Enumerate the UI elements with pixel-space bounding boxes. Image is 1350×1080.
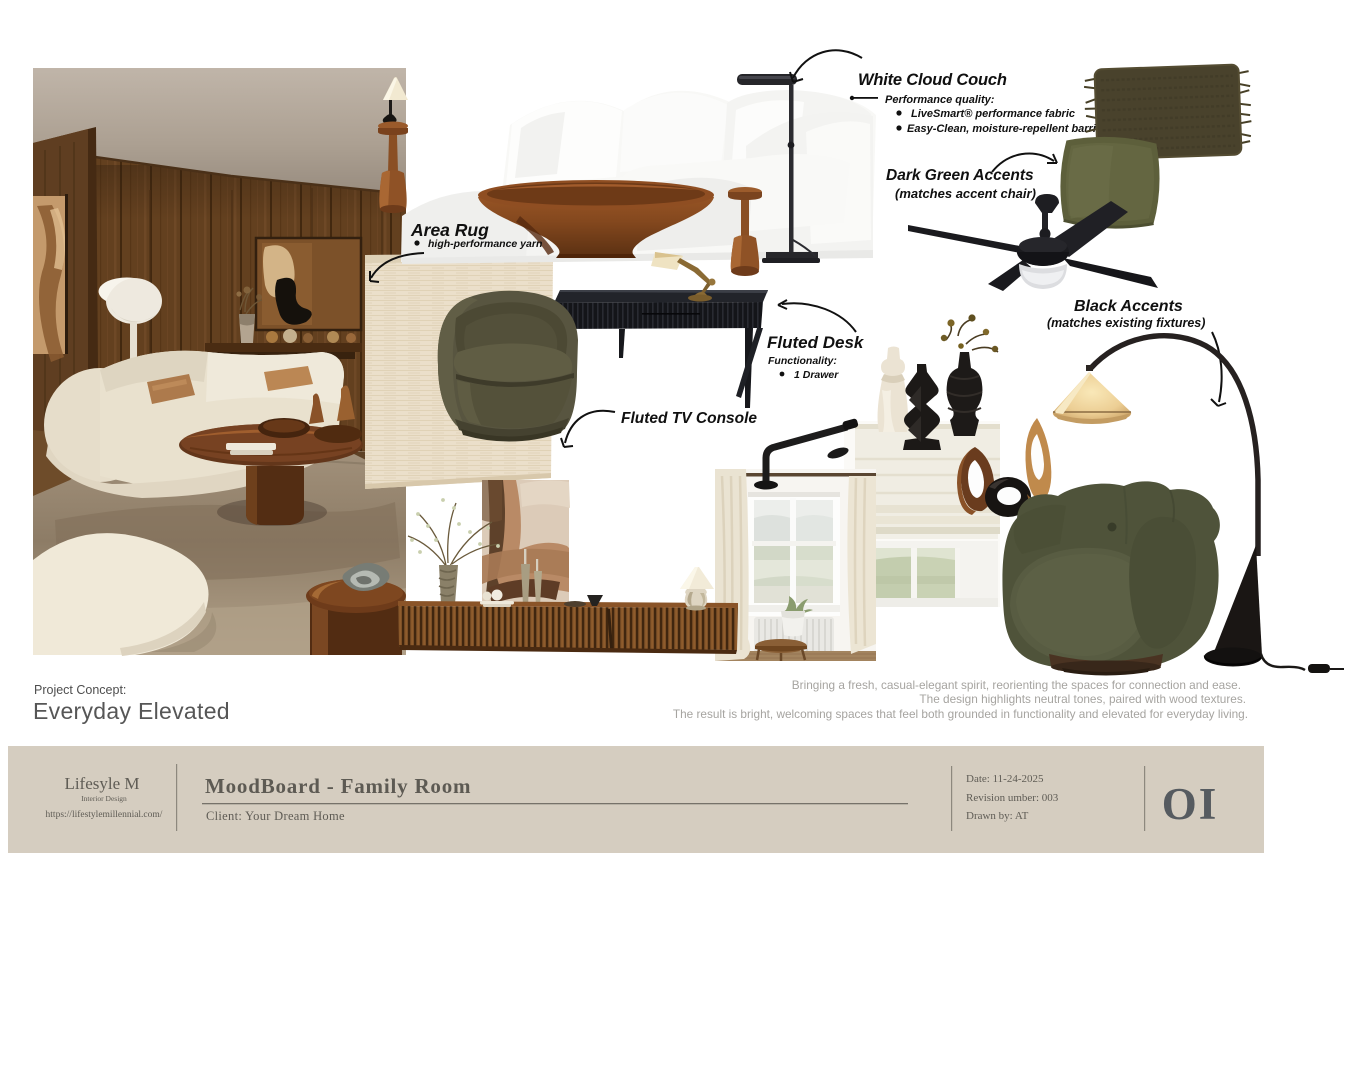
svg-text:Black Accents: Black Accents: [1074, 298, 1183, 315]
svg-text:MoodBoard - Family Room: MoodBoard - Family Room: [205, 774, 471, 798]
svg-text:(matches existing fixtures): (matches existing fixtures): [1047, 316, 1205, 330]
svg-text:The design highlights neutral: The design highlights neutral tones, pai…: [919, 692, 1246, 706]
svg-text:1 Drawer: 1 Drawer: [794, 369, 839, 381]
svg-text:Everyday Elevated: Everyday Elevated: [33, 698, 230, 724]
svg-text:Bringing a fresh, casual-elega: Bringing a fresh, casual-elegant spirit,…: [792, 678, 1241, 692]
svg-text:Interior Design: Interior Design: [81, 794, 127, 803]
svg-text:Easy-Clean, moisture-repellent: Easy-Clean, moisture-repellent barrier: [907, 123, 1107, 135]
svg-text:Client: Your Dream Home: Client: Your Dream Home: [206, 809, 345, 823]
svg-text:(matches accent chair): (matches accent chair): [895, 186, 1036, 201]
svg-text:Date: 11-24-2025: Date: 11-24-2025: [966, 773, 1044, 785]
svg-text:LiveSmart® performance fabric: LiveSmart® performance fabric: [911, 108, 1075, 120]
svg-text:Functionality:: Functionality:: [768, 355, 837, 367]
svg-text:Project Concept:: Project Concept:: [34, 683, 126, 697]
svg-text:https://lifestylemillennial.co: https://lifestylemillennial.com/: [46, 809, 163, 820]
svg-text:White Cloud Couch: White Cloud Couch: [858, 71, 1007, 89]
svg-text:Fluted TV Console: Fluted TV Console: [621, 410, 757, 427]
svg-text:Fluted Desk: Fluted Desk: [767, 333, 865, 352]
svg-text:The result is bright, welcomin: The result is bright, welcoming spaces t…: [673, 707, 1248, 721]
svg-text:OI: OI: [1162, 779, 1219, 829]
svg-text:high-performance yarn: high-performance yarn: [428, 238, 542, 250]
svg-text:Area Rug: Area Rug: [410, 220, 489, 240]
svg-text:Drawn by: AT: Drawn by: AT: [966, 810, 1029, 822]
svg-text:Revision umber: 003: Revision umber: 003: [966, 792, 1059, 804]
svg-text:Lifesyle M: Lifesyle M: [64, 774, 139, 793]
svg-text:Performance quality:: Performance quality:: [885, 94, 995, 106]
svg-text:Dark Green Accents: Dark Green Accents: [886, 167, 1034, 184]
